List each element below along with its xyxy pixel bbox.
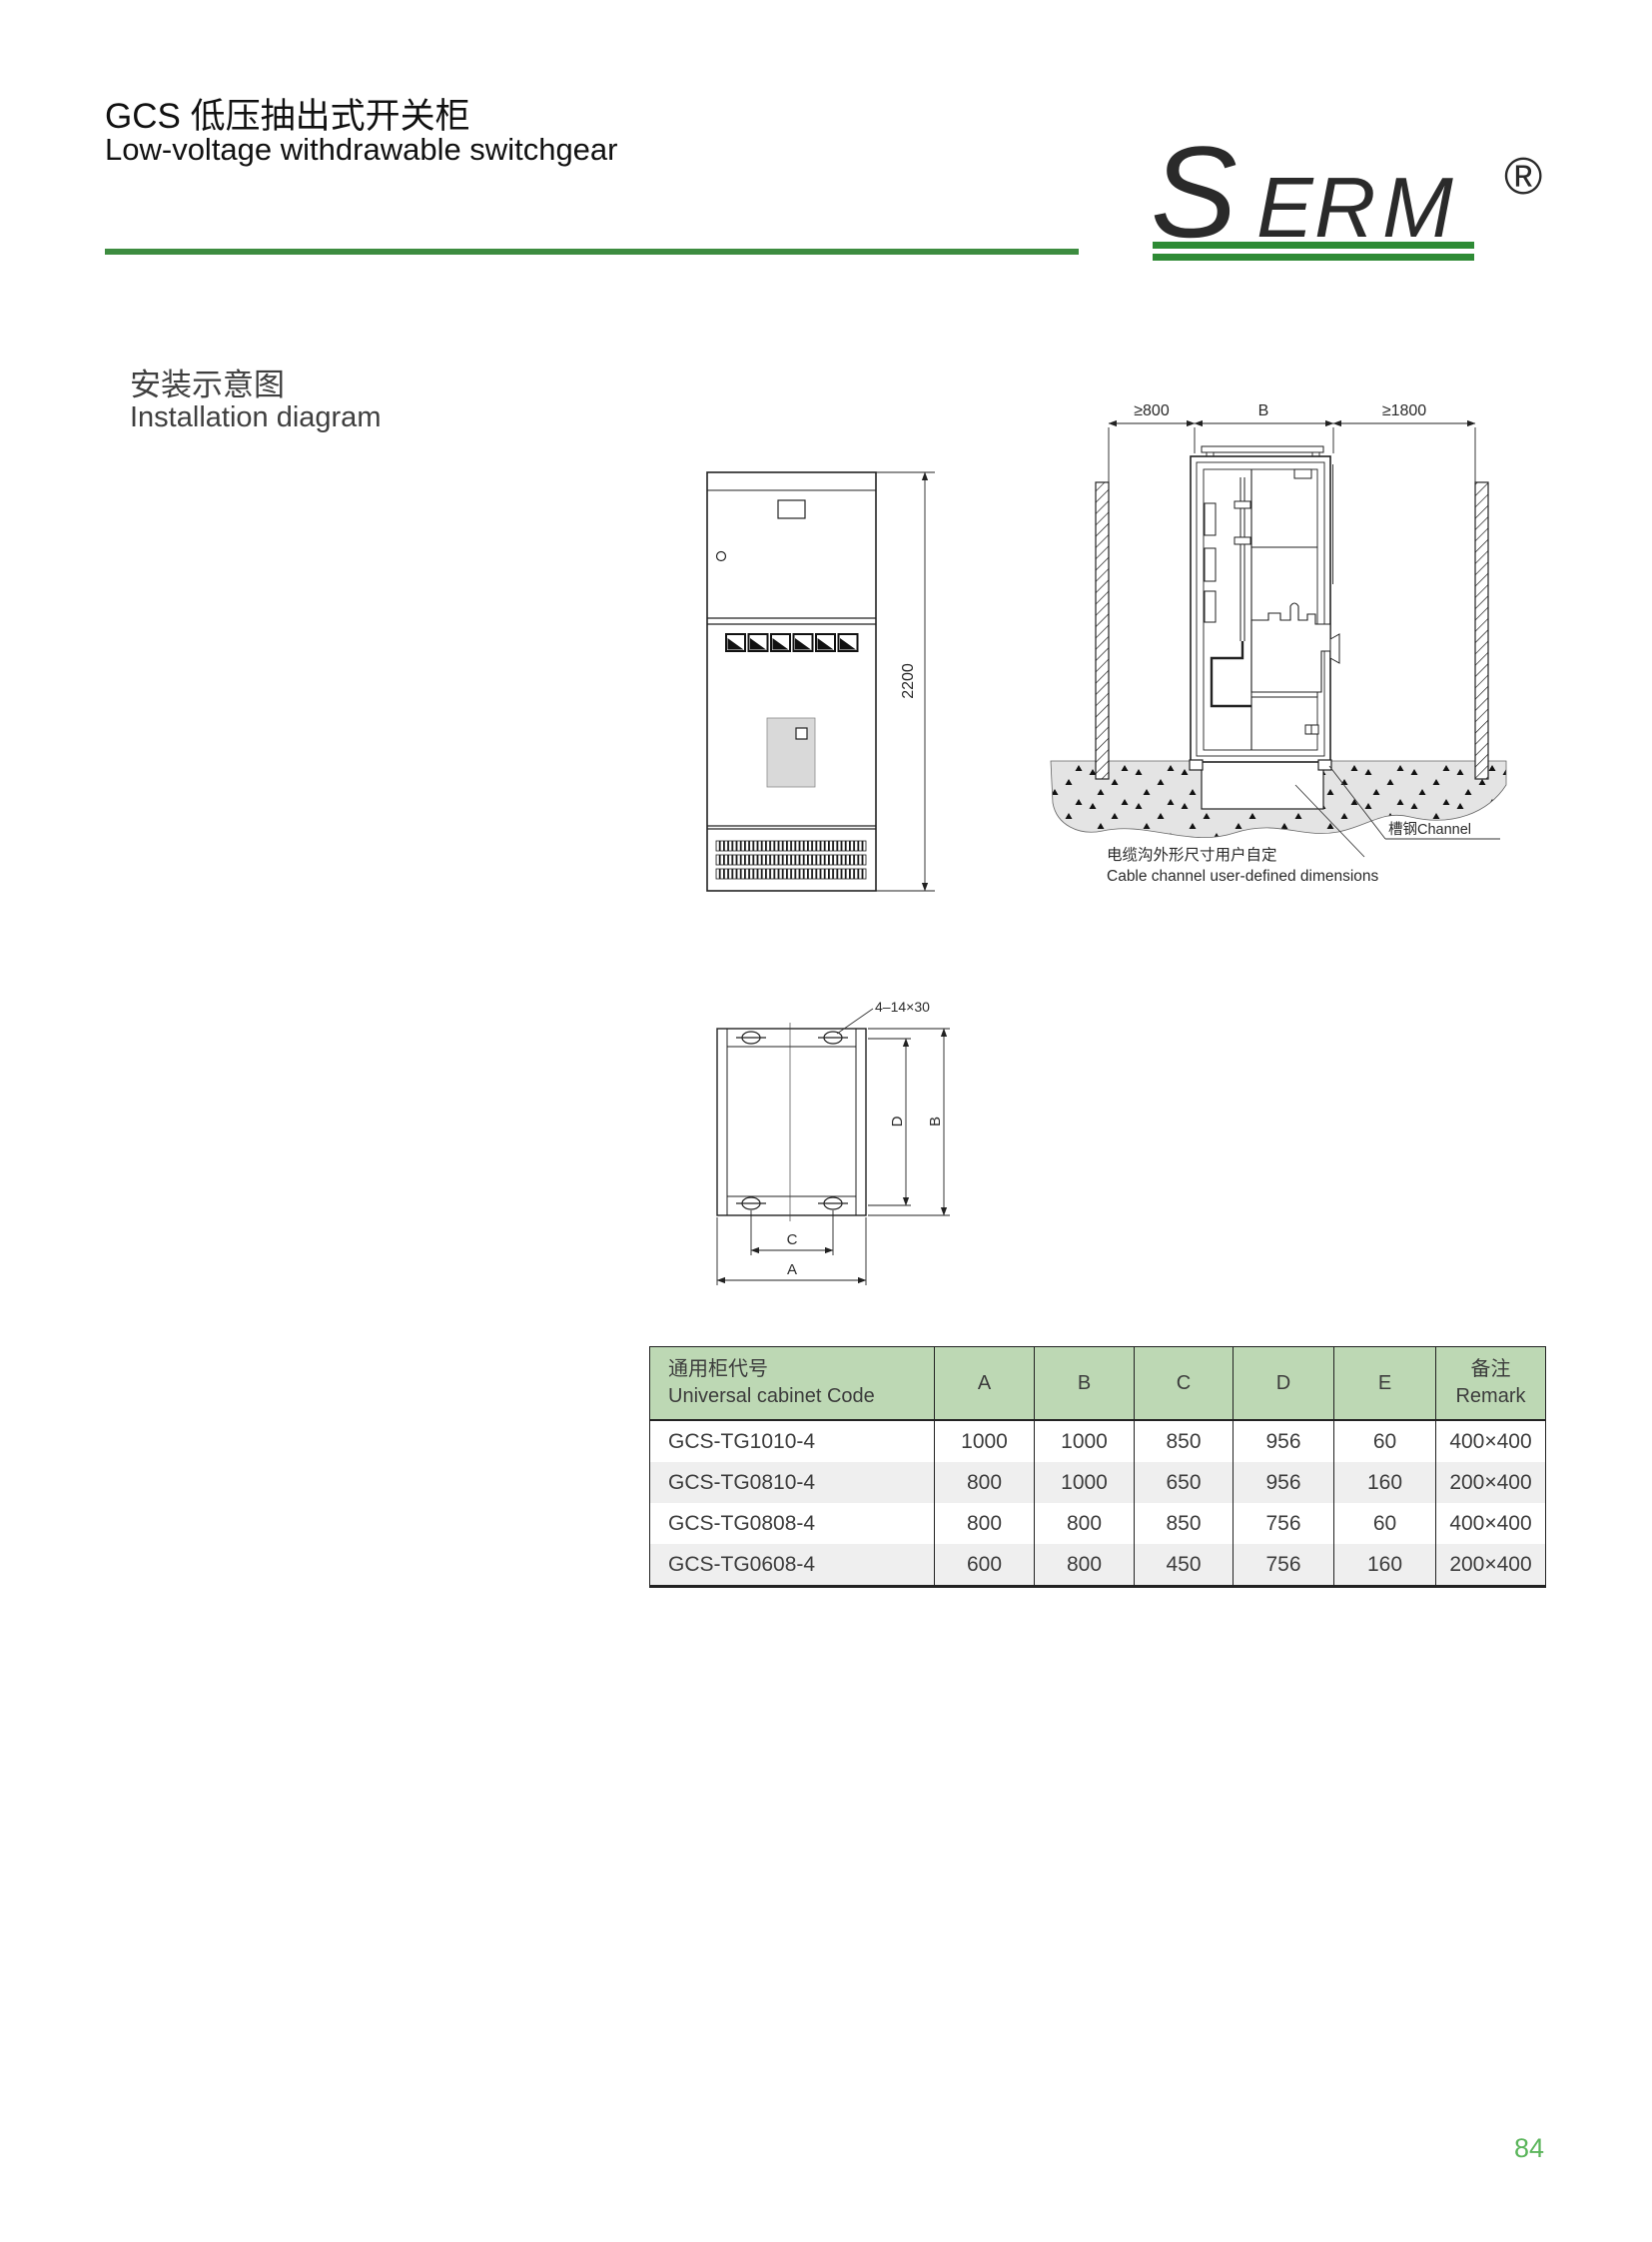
cell-b: 1000 bbox=[1035, 1462, 1135, 1503]
left-wall bbox=[1096, 482, 1109, 779]
section-title-zh: 安装示意图 bbox=[130, 360, 285, 404]
cell-d: 956 bbox=[1234, 1420, 1334, 1462]
cell-a: 800 bbox=[935, 1503, 1035, 1544]
cell-e: 60 bbox=[1334, 1503, 1436, 1544]
table-row: GCS-TG0608-4 600 800 450 756 160 200×400 bbox=[650, 1544, 1546, 1587]
cell-b: 1000 bbox=[1035, 1420, 1135, 1462]
header-remark-en: Remark bbox=[1437, 1383, 1544, 1410]
table-row: GCS-TG0810-4 800 1000 650 956 160 200×40… bbox=[650, 1462, 1546, 1503]
cell-e: 60 bbox=[1334, 1420, 1436, 1462]
cell-code: GCS-TG0608-4 bbox=[650, 1544, 935, 1587]
header-remark-zh: 备注 bbox=[1437, 1356, 1544, 1383]
base-frame bbox=[717, 1023, 866, 1221]
label-plate bbox=[767, 718, 815, 787]
logo-letter-r: R bbox=[1314, 161, 1375, 256]
busbar-clamp bbox=[1235, 501, 1250, 508]
cable-channel-opening bbox=[1202, 761, 1323, 809]
cell-remark: 400×400 bbox=[1436, 1420, 1546, 1462]
cabinet-side-view bbox=[1190, 446, 1339, 770]
table-row: GCS-TG0808-4 800 800 850 756 60 400×400 bbox=[650, 1503, 1546, 1544]
catalog-page: GCS 低压抽出式开关柜 Low-voltage withdrawable sw… bbox=[0, 0, 1652, 2242]
header-code-zh: 通用柜代号 bbox=[668, 1356, 933, 1383]
header-col-d: D bbox=[1234, 1347, 1334, 1421]
title-underline-rule bbox=[105, 249, 1079, 255]
slot-size-label: 4–14×30 bbox=[875, 999, 930, 1015]
cell-a: 800 bbox=[935, 1462, 1035, 1503]
cell-d: 956 bbox=[1234, 1462, 1334, 1503]
page-title-en: Low-voltage withdrawable switchgear bbox=[105, 132, 617, 168]
cabinet-front-view-diagram: 2200 bbox=[639, 439, 999, 909]
page-number: 84 bbox=[1514, 2133, 1544, 2164]
registered-trademark-icon: ® bbox=[1504, 148, 1542, 206]
header-col-c: C bbox=[1135, 1347, 1234, 1421]
table-header-row: 通用柜代号 Universal cabinet Code A B C D E 备… bbox=[650, 1347, 1546, 1421]
cable-note-zh: 电缆沟外形尺寸用户自定 bbox=[1107, 846, 1277, 864]
cell-a: 600 bbox=[935, 1544, 1035, 1587]
logo-letter-e: E bbox=[1256, 161, 1314, 256]
lifting-rail bbox=[1202, 446, 1323, 452]
cell-c: 450 bbox=[1135, 1544, 1234, 1587]
cell-d: 756 bbox=[1234, 1503, 1334, 1544]
cell-d: 756 bbox=[1234, 1544, 1334, 1587]
cell-remark: 400×400 bbox=[1436, 1503, 1546, 1544]
base-plan-view-diagram: 4–14×30 D B C A bbox=[659, 949, 999, 1308]
dim-d-label: D bbox=[889, 1116, 906, 1126]
insulator-support bbox=[1205, 503, 1216, 535]
base-channel-left bbox=[1190, 760, 1203, 770]
installation-cross-section-diagram: ≥800 B ≥1800 bbox=[1039, 389, 1538, 904]
cell-code: GCS-TG1010-4 bbox=[650, 1420, 935, 1462]
cell-e: 160 bbox=[1334, 1544, 1436, 1587]
cell-c: 850 bbox=[1135, 1503, 1234, 1544]
cell-remark: 200×400 bbox=[1436, 1462, 1546, 1503]
logo-letter-m: M bbox=[1382, 161, 1453, 256]
table-row: GCS-TG1010-4 1000 1000 850 956 60 400×40… bbox=[650, 1420, 1546, 1462]
dim-cabinet-width-label: B bbox=[1258, 402, 1269, 419]
cell-e: 160 bbox=[1334, 1462, 1436, 1503]
channel-steel-label: 槽钢Channel bbox=[1388, 821, 1471, 838]
cell-b: 800 bbox=[1035, 1503, 1135, 1544]
dim-right-clearance-label: ≥1800 bbox=[1382, 402, 1426, 419]
dim-a-label: A bbox=[787, 1261, 797, 1278]
cell-remark: 200×400 bbox=[1436, 1544, 1546, 1587]
base-channel-right bbox=[1318, 760, 1331, 770]
serm-logo: S E R M ® bbox=[1139, 92, 1558, 270]
front-view-cabinet-outline bbox=[707, 472, 876, 891]
logo-underline-bar-1 bbox=[1153, 242, 1474, 249]
logo-underline-bar-2 bbox=[1153, 254, 1474, 261]
section-title-en: Installation diagram bbox=[130, 401, 381, 434]
right-wall bbox=[1475, 482, 1488, 779]
cell-a: 1000 bbox=[935, 1420, 1035, 1462]
cell-code: GCS-TG0810-4 bbox=[650, 1462, 935, 1503]
header-col-b: B bbox=[1035, 1347, 1135, 1421]
height-dimension-label: 2200 bbox=[900, 663, 917, 699]
header-col-e: E bbox=[1334, 1347, 1436, 1421]
header-col-a: A bbox=[935, 1347, 1035, 1421]
cabinet-dimension-table: 通用柜代号 Universal cabinet Code A B C D E 备… bbox=[649, 1346, 1546, 1588]
ventilation-grilles bbox=[716, 841, 866, 879]
header-cabinet-code: 通用柜代号 Universal cabinet Code bbox=[650, 1347, 935, 1421]
cell-c: 850 bbox=[1135, 1420, 1234, 1462]
cell-b: 800 bbox=[1035, 1544, 1135, 1587]
dim-c-label: C bbox=[787, 1231, 798, 1248]
cell-code: GCS-TG0808-4 bbox=[650, 1503, 935, 1544]
dim-b-label: B bbox=[927, 1117, 944, 1126]
header-remark: 备注 Remark bbox=[1436, 1347, 1546, 1421]
header-code-en: Universal cabinet Code bbox=[668, 1383, 933, 1410]
cable-note-en: Cable channel user-defined dimensions bbox=[1107, 868, 1379, 885]
dim-left-clearance-label: ≥800 bbox=[1134, 402, 1170, 419]
cell-c: 650 bbox=[1135, 1462, 1234, 1503]
side-handle bbox=[1330, 634, 1339, 663]
